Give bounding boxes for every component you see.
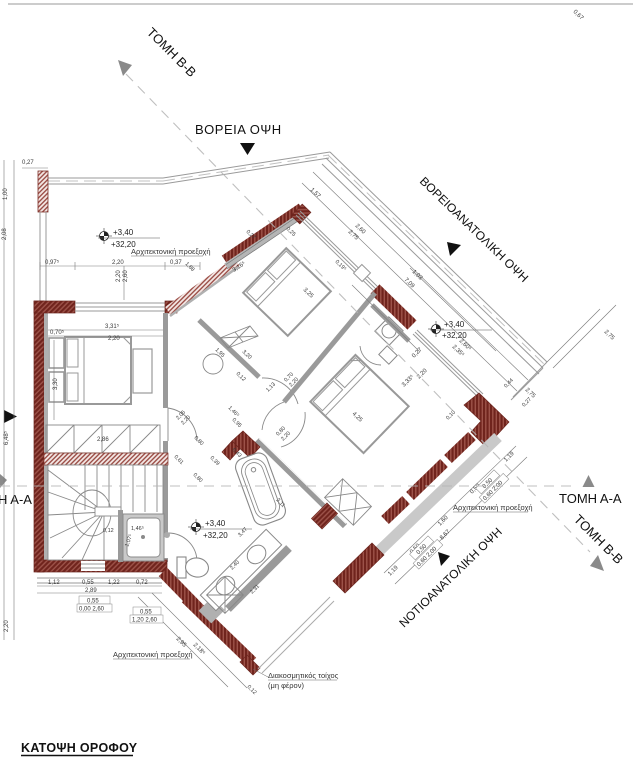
svg-text:2,89: 2,89 [85,588,97,594]
svg-text:0,70⁵: 0,70⁵ [50,329,65,336]
svg-text:0,37: 0,37 [170,260,182,266]
svg-text:Αρχιτεκτονική προεξοχή: Αρχιτεκτονική προεξοχή [453,503,533,512]
svg-text:1,20 2,60: 1,20 2,60 [132,618,158,624]
svg-text:0,97⁵: 0,97⁵ [45,259,60,266]
svg-text:Αρχιτεκτονική προεξοχή: Αρχιτεκτονική προεξοχή [113,650,193,659]
svg-text:1,22: 1,22 [108,580,120,586]
svg-text:0,55: 0,55 [82,580,94,586]
svg-text:1,12: 1,12 [48,580,60,586]
svg-text:2,08: 2,08 [2,228,8,240]
svg-text:0,27: 0,27 [22,160,34,166]
svg-text:ΤΟΜΗ Α-Α: ΤΟΜΗ Α-Α [559,491,622,506]
svg-text:6,48⁵: 6,48⁵ [3,430,10,445]
svg-text:2,60: 2,60 [123,270,129,282]
svg-text:+3,40: +3,40 [113,228,134,237]
svg-text:0,00 2,60: 0,00 2,60 [79,607,105,613]
svg-text:2,86: 2,86 [97,437,109,443]
svg-text:ΒΟΡΕΙΑ ΟΨΗ: ΒΟΡΕΙΑ ΟΨΗ [195,122,282,137]
svg-text:Η Α-Α: Η Α-Α [0,492,32,507]
svg-text:0,55: 0,55 [87,599,99,605]
svg-text:0,55: 0,55 [140,610,152,616]
svg-text:2,20: 2,20 [108,336,120,342]
svg-text:ΚΑΤΟΨΗ ΟΡΟΦΟΥ: ΚΑΤΟΨΗ ΟΡΟΦΟΥ [21,741,138,755]
svg-text:1,00: 1,00 [3,188,9,200]
svg-text:1,46⁵: 1,46⁵ [131,525,144,532]
svg-text:+3,40: +3,40 [444,320,465,329]
svg-text:3,31⁵: 3,31⁵ [105,323,120,330]
svg-text:Αρχιτεκτονική προεξοχή: Αρχιτεκτονική προεξοχή [131,247,211,256]
svg-text:Διακοσμητικός τοίχος: Διακοσμητικός τοίχος [268,671,339,680]
svg-text:2,20: 2,20 [116,270,122,282]
svg-text:3,30: 3,30 [53,378,59,390]
svg-text:+3,40: +3,40 [205,519,226,528]
svg-text:+32,20: +32,20 [203,531,228,540]
svg-text:2,20: 2,20 [112,260,124,266]
svg-text:0,12: 0,12 [103,528,114,534]
svg-text:2,20: 2,20 [4,620,10,632]
svg-text:0,72: 0,72 [136,580,148,586]
svg-text:(μη φέρον): (μη φέρον) [268,681,304,690]
